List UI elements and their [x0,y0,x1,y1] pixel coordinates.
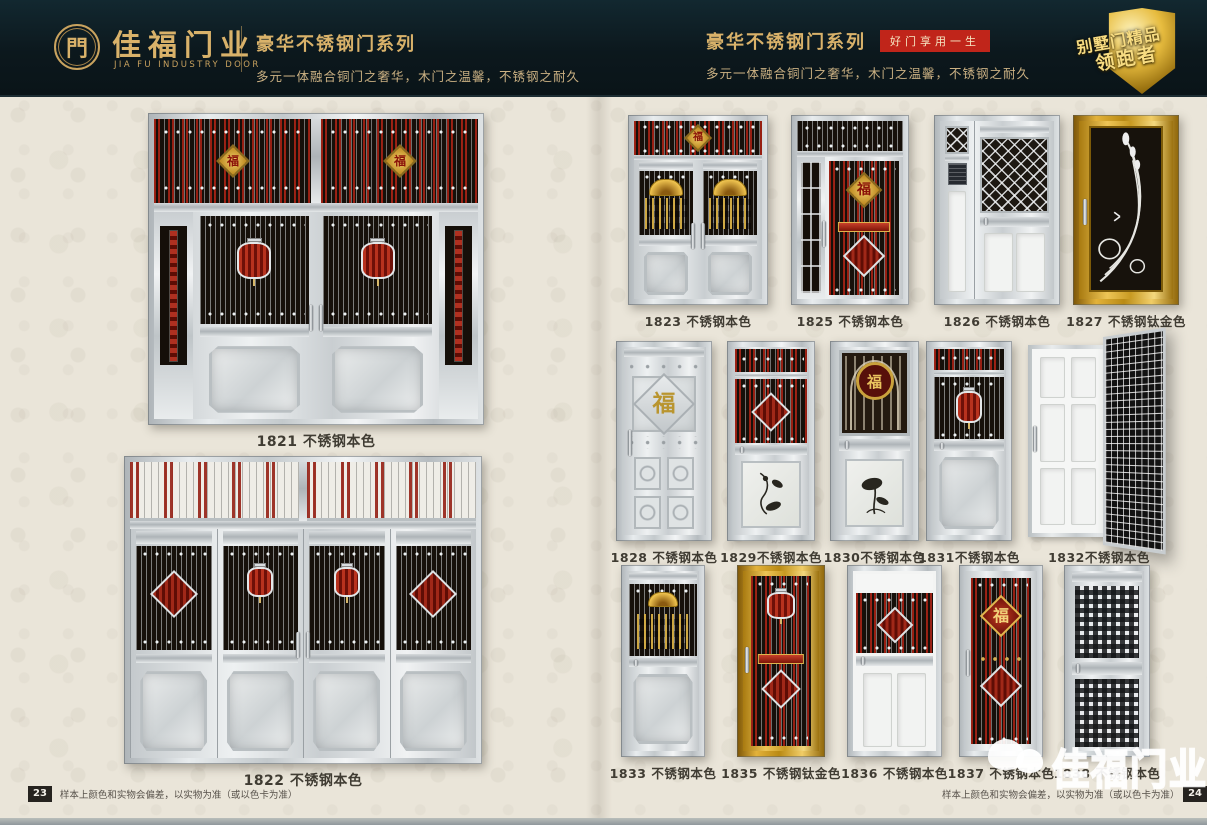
rivet-dots-row [139,551,208,557]
sun-panel [667,496,694,529]
door-frame [621,565,705,757]
door-leaf-area: 福 [965,571,1037,751]
embossed-panel-wrap [627,667,699,751]
door-handle [306,632,310,658]
door-leaf [217,529,304,758]
fu-panel: 福 [632,376,696,432]
door-label-1838: 1838 不锈钢本色 [1039,763,1175,782]
raised-panel [863,673,892,747]
rivet-dots-row [327,311,427,317]
door-handle [296,632,300,658]
rivet-dots-row [312,551,381,557]
rivet-dots-row [859,645,930,651]
leaf-top [396,531,472,545]
embossed-panel-wrap [319,340,436,419]
curtain-window [735,379,807,443]
raised-panel [1016,233,1045,292]
door-handle [319,305,323,331]
fu-diamond-ornament: 福 [633,373,695,435]
door-1838-image [1064,565,1150,757]
door-leaf-area [940,121,1054,299]
etched-art-panel [845,459,904,528]
band [839,439,910,450]
door-handle [634,660,638,666]
son-leaf [797,157,825,299]
rivet-dots-row [754,735,809,741]
raised-panel [1040,404,1065,461]
rivet-dots-row [327,185,471,191]
lantern-window [323,216,432,324]
embossed-panel [209,346,300,412]
firecracker-panel [445,226,471,365]
door-label-1827: 1827 不锈钢钛金色 [1048,311,1204,330]
rivet-dots-row [160,185,304,191]
band [856,656,933,667]
rivet-dots-row [327,129,471,135]
door-leaf [698,160,762,299]
raised-panel [897,673,926,747]
knot-diamond-ornament [409,570,457,618]
door-handle [822,221,826,247]
lotus-art-graphic [855,465,894,521]
fan-window [629,584,697,656]
embossed-panel [227,671,294,751]
transom-grille: 福 [321,119,478,203]
door-frame [1064,565,1150,757]
door-1836-image [847,565,942,757]
leaf-band [136,654,212,663]
door-leaf [634,160,698,299]
etched-art-panel [741,461,801,528]
door-label-1821: 1821 不锈钢本色 [123,431,509,451]
gold-dots-row [977,656,1024,662]
door-1825-image: 福 [791,115,909,305]
arch-window: 福 [839,350,910,436]
door-leaves-row [154,212,478,419]
raised-panel [984,233,1013,292]
fan-ornament-icon [648,592,678,607]
transom-grille [130,462,299,521]
door-1823-image: 福 [628,115,768,305]
fu-diamond-ornament: 福 [980,595,1022,637]
knot-diamond-ornament [761,669,801,709]
transom-grille [934,349,1004,370]
rivet-dots-row [738,383,804,389]
door-1833-image [621,565,705,757]
door-frame [847,565,942,757]
door-leaf-area [1070,571,1144,751]
door-handle [740,447,744,454]
door-leaves-row [130,529,476,758]
rivet-dots-row [226,551,295,557]
embossed-panel [140,671,207,751]
door-frame: 福福 [148,113,484,425]
rivet-dots-row [937,355,1001,361]
embossed-panel [313,671,380,751]
lantern-ornament-icon [334,563,360,603]
fu-diamond-ornament: 福 [845,171,882,208]
art-panel-wrap [836,451,913,535]
embossed-panel-wrap [932,451,1006,535]
series-subtitle-left: 多元一体融合铜门之奢华，木门之温馨，不锈钢之耐久 [256,66,580,85]
knot-diamond-ornament [980,665,1022,707]
door-handle [309,305,313,331]
door-handle [861,657,865,665]
rivet-dots-row [204,222,304,228]
door-handle [1083,199,1087,225]
lantern-window [200,216,309,324]
leaf-top [309,531,385,545]
door-frame: 福 [791,115,909,305]
band [980,126,1049,133]
page-number-left: 23 [28,786,52,802]
door-leaf-area: 福 [836,347,913,535]
door-leaf-area [743,571,819,751]
fan-ornament-icon [713,179,747,196]
door-1832-image [1028,341,1170,541]
red-bar-ornament [758,654,804,664]
lantern-ornament-icon [247,563,273,603]
door-logo-icon: 門 [54,24,100,70]
door-handle [940,443,944,450]
fu-diamond-ornament: 福 [216,144,250,178]
main-leaf [974,121,1054,299]
door-frame [934,115,1060,305]
door-frame [737,565,825,757]
rivet-dots-row [801,143,899,149]
lantern-window [934,377,1004,439]
frame-band [130,521,476,528]
leaf-band [223,654,299,663]
series-subtitle-right: 多元一体融合铜门之奢华，木门之温馨，不锈钢之耐久 [706,63,1030,82]
white-door-face [1032,349,1104,533]
lattice-window [945,126,969,154]
fan-window [639,171,693,235]
leaf-band [309,654,385,663]
ink-art-graphic [751,467,790,522]
fan-ornament-icon [649,179,683,196]
brand-name: 佳福门业 [112,22,256,64]
arch-grille: 福 [845,356,904,430]
page-number-right: 24 [1183,786,1207,802]
door-leaves-row: 福 [797,157,903,299]
embossed-panel-wrap [306,665,388,758]
door-label-1832: 1832不锈钢本色 [1003,547,1195,566]
transom-mullion [311,119,321,203]
door-handle [745,647,749,673]
door-leaves-row [634,160,762,299]
embossed-panel-wrap [393,665,475,758]
intercom-unit [948,163,967,185]
ornament-window [223,546,299,649]
fu-medallion: 福 [856,362,894,400]
rivet-dots-row [226,639,295,645]
door-handle [628,430,632,456]
door-leaf-area: 福 [797,121,903,299]
rivet-dots-row [831,287,896,293]
raised-panel [1040,357,1065,398]
door-frame [1073,115,1179,305]
gold-fringe [709,198,750,229]
door-leaf-area [853,571,936,751]
door-frame [124,456,482,764]
full-grille-window: 福 [971,578,1030,744]
door-frame: 福 [616,341,712,541]
door-1827-image [1073,115,1179,305]
gold-fringe [645,198,686,229]
rivet-dots-row [399,551,468,557]
side-panel [439,212,478,419]
door-handle [966,650,970,676]
band [945,156,969,161]
lattice-window [980,137,1049,213]
rivet-dots-row [312,639,381,645]
lantern-ornament-icon [767,588,795,624]
door-handle [1033,426,1037,452]
leaf-band [703,239,757,246]
door-leaf [390,529,477,758]
door-leaf-area [130,462,476,758]
door-leaf-area: 福 [634,121,762,299]
rivet-dots-row [327,222,427,228]
door-1830-image: 福 [830,341,919,541]
door-frame [727,341,815,541]
open-mesh-screen-door [1103,328,1166,555]
sun-panel [634,496,661,529]
door-leaf-area [627,571,699,751]
door-1821-image: 福福 [148,113,484,425]
transom-grille: 福 [634,121,762,155]
door-label-1833: 1833 不锈钢本色 [596,763,730,782]
rivet-dots-row [974,582,1028,588]
son-leaf-grille [801,162,821,293]
embossed-panel-wrap [133,665,215,758]
fan-window [703,171,757,235]
photo-bottom-edge [0,818,1207,825]
premium-medal-badge: 别墅门精品 领跑者 [1084,6,1196,96]
door-leaf-area [932,347,1006,535]
door-frame: 福 [959,565,1043,757]
raised-panel [1040,468,1065,525]
transom-grille [307,462,476,521]
rivet-dots-row [754,581,809,587]
rivet-dots-row [160,129,304,135]
firecracker-ornament [170,231,176,360]
door-handle [984,218,988,225]
transom-row: 福福 [154,119,478,203]
knot-diamond-ornament [751,393,791,433]
door-label-1823: 1823 不锈钢本色 [603,311,793,330]
leaf-band [396,654,472,663]
top-band [856,574,933,590]
rivet-dots-row [801,125,899,131]
door-leaf-area: 福 [622,347,706,535]
raised-panel [948,191,966,292]
door-leaf-area [1079,121,1173,299]
embossed-panel [633,674,692,744]
door-handle [1076,664,1080,673]
leaf-band [200,327,309,337]
door-leaf [130,529,217,758]
door-1829-image [727,341,815,541]
knot-diamond-ornament [876,607,913,644]
band [934,441,1004,450]
leaf-top [136,531,212,545]
firecracker-ornament [455,231,461,360]
rivet-dots-row [139,639,208,645]
scroll-art-graphic [1091,128,1161,290]
disclaimer-right: 样本上颜色和实物会偏差，以实物为准（或以色卡为准） [942,787,1175,801]
top-band [624,349,704,357]
ornament-window [309,546,385,649]
series-title-left: 豪华不锈钢门系列 [256,30,580,56]
perforated-panel [1075,586,1139,658]
band [1072,662,1142,675]
embossed-panel [332,346,423,412]
ornament-window [856,593,933,652]
full-grille-window [751,576,810,745]
embossed-panel-wrap [220,665,302,758]
top-band [1072,573,1142,582]
rivet-dots-row [859,597,930,603]
transom-grille: 福 [154,119,311,203]
leaf-top [223,531,299,545]
band [934,372,1004,376]
knot-diamond-ornament [843,235,885,277]
lantern-ornament-icon [361,238,395,286]
embossed-panel-wrap [636,248,696,299]
embossed-panel [400,671,467,751]
series-block-left: 豪华不锈钢门系列 多元一体融合铜门之奢华，木门之温馨，不锈钢之耐久 [256,30,580,85]
main-leaf: 福 [825,157,903,299]
door-1822-image [124,456,482,764]
transom-grille [797,121,903,151]
door-leaf [193,212,316,419]
ornament-window [396,546,472,649]
rivet-dots-row [204,311,304,317]
disclaimer-left: 样本上颜色和实物会偏差，以实物为准（或以色卡为准） [60,787,298,801]
door-handle [845,441,849,449]
leaf-top [639,162,693,169]
perforated-panel [1075,679,1139,747]
right-page-footer: 样本上颜色和实物会偏差，以实物为准（或以色卡为准） 24 [942,786,1207,802]
door-handle [691,223,695,249]
raised-panel [1071,357,1096,398]
embossed-panel [644,252,688,295]
ornament-window [136,546,212,649]
lantern-ornament-icon [956,387,982,429]
fu-diamond-ornament: 福 [383,144,417,178]
raised-panel [1071,404,1096,461]
fu-window: 福 [829,161,899,295]
door-1831-image [926,341,1012,541]
embossed-panel-wrap [700,248,760,299]
top-band [629,573,697,580]
transom-mullion [299,462,307,521]
embossed-panel-wrap [196,340,313,419]
series-block-right: 豪华不锈钢门系列 好门享用一生 多元一体融合铜门之奢华，木门之温馨，不锈钢之耐久 [706,28,1030,82]
transom-grille [735,349,807,372]
red-bar-ornament [838,222,890,231]
white-panel-door [1028,345,1108,537]
door-1837-image: 福 [959,565,1043,757]
chevron-row [630,361,697,372]
band [980,217,1049,227]
slogan-badge: 好门享用一生 [880,30,990,52]
header-divider [241,26,242,72]
rivet-dots-row [399,639,468,645]
scroll-art-window [1091,128,1161,290]
frame-band [154,203,478,212]
leaf-band [639,239,693,246]
raised-panel [1071,468,1096,525]
panel-grid [622,451,706,535]
son-leaf [940,121,974,299]
gold-fringe [637,614,689,649]
door-leaves-row [940,121,1054,299]
sun-panel [634,457,661,490]
firecracker-panel [160,226,186,365]
header-bar: 門 佳福门业 JIA FU INDUSTRY DOOR 豪华不锈钢门系列 多元一… [0,0,1207,97]
knot-diamond-ornament [150,570,198,618]
door-leaf-area [733,347,809,535]
band [735,445,807,454]
panel-row [853,669,936,751]
door-leaf [303,529,390,758]
door-1826-image [934,115,1060,305]
side-panel [154,212,193,419]
band [735,374,807,378]
door-leaf [316,212,439,419]
band [629,658,697,667]
brand-name-en: JIA FU INDUSTRY DOOR [114,60,261,70]
rivet-dots-row [738,436,804,442]
catalog-spread: 門 佳福门业 JIA FU INDUSTRY DOOR 豪华不锈钢门系列 多元一… [0,0,1207,825]
lantern-ornament-icon [237,238,271,286]
sun-panel [667,457,694,490]
logo-glyph: 門 [66,31,88,63]
door-handle [701,223,705,249]
rivet-dots-row [738,356,804,362]
left-page-footer: 23 样本上颜色和实物会偏差，以实物为准（或以色卡为准） [28,786,297,802]
art-panel-wrap [733,455,809,535]
door-1835-image [737,565,825,757]
page-seam [586,97,612,825]
embossed-panel [708,252,752,295]
chevron-row [630,436,697,449]
door-frame: 福 [628,115,768,305]
embossed-panel [939,457,998,529]
panel-row [978,229,1051,296]
leaf-band [323,327,432,337]
leaf-top [703,162,757,169]
door-frame [926,341,1012,541]
transom-row [130,462,476,521]
door-1828-image: 福 [616,341,712,541]
door-frame: 福 [830,341,919,541]
rivet-dots-row [937,432,1001,438]
door-leaf-area: 福福 [154,119,478,419]
series-title-right: 豪华不锈钢门系列 [706,28,866,54]
rivet-dots-row [974,736,1028,742]
